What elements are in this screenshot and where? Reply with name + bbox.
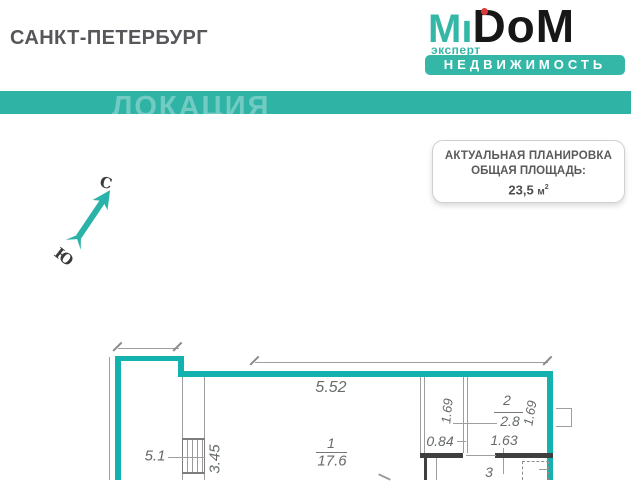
appliance-tick	[539, 469, 548, 470]
room1-number: 1	[327, 435, 335, 451]
wall-hatch-block	[182, 438, 205, 474]
dim-tick	[542, 356, 552, 366]
leader-line-5-1	[168, 457, 205, 458]
dim-height-right: 1.69	[520, 399, 539, 427]
leader-line-2-8	[453, 423, 497, 424]
dim-wall-depth: 3.45	[207, 444, 224, 473]
dim-bracket-top	[118, 348, 179, 349]
dim-line-top	[255, 362, 548, 363]
wall-top-upper	[115, 356, 184, 361]
dim-0-84: 0.84	[426, 433, 453, 449]
interior-wall-c-right	[424, 377, 425, 453]
dim-tick	[112, 342, 122, 352]
room2-area: 2.8	[500, 413, 519, 429]
dim-tick	[249, 356, 259, 366]
extension-line-left	[109, 357, 110, 480]
dim-height-left: 1.69	[438, 398, 456, 425]
wall-left	[115, 356, 121, 480]
wall-lower-2	[495, 453, 553, 458]
appliance-dashed-outline	[522, 461, 549, 480]
door-opening-line	[466, 455, 496, 456]
wall-top-main	[178, 371, 553, 377]
niche-line	[436, 458, 437, 480]
interior-wall-b-right	[467, 377, 468, 453]
room3-number: 3	[485, 464, 493, 480]
dim-1-63: 1.63	[490, 432, 517, 448]
leader-line-1-63	[503, 448, 504, 474]
room1-area: 17.6	[317, 453, 346, 470]
dim-left-width: 5.1	[145, 448, 166, 465]
tick-0-84	[457, 441, 466, 442]
dim-top-width: 5.52	[315, 379, 346, 397]
listing-floorplan-page: { "colors": { "brand_teal": "#35b7a8", "…	[0, 0, 631, 480]
floor-plan: 5.52 5.1 3.45 1 17.6 1.69 2 2.8 1.69 0.8…	[0, 0, 631, 480]
room2-number: 2	[503, 392, 511, 408]
dim-vert-right	[571, 408, 572, 427]
dim-dash-right-1	[556, 408, 572, 409]
wall-lower-stub	[424, 458, 427, 480]
dim-tick	[172, 342, 182, 352]
dim-dash-right-2	[556, 426, 572, 427]
interior-wall-c-left	[420, 377, 421, 453]
